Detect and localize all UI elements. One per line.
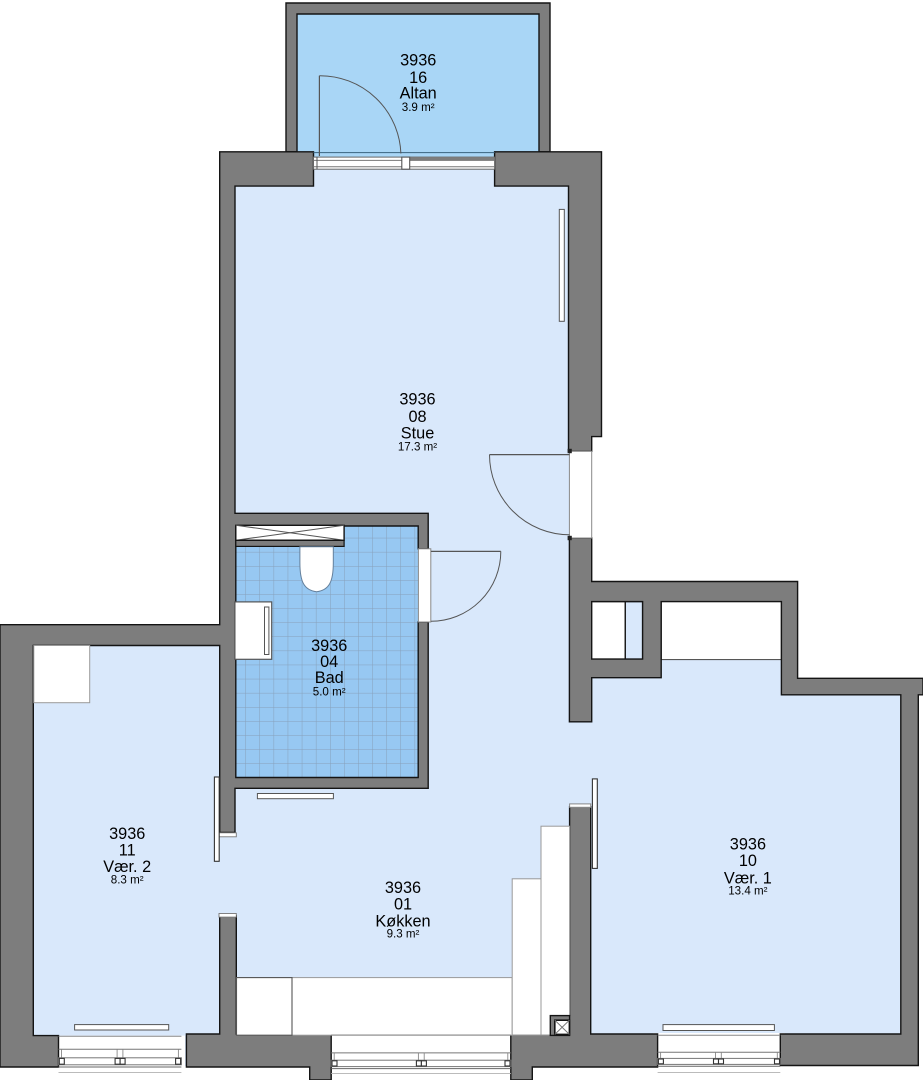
svg-text:17.3 m²: 17.3 m²	[398, 441, 437, 454]
svg-text:13.4 m²: 13.4 m²	[728, 884, 767, 897]
svg-text:3936: 3936	[109, 825, 145, 843]
svg-text:10: 10	[739, 852, 757, 870]
svg-text:3936: 3936	[400, 51, 436, 69]
svg-text:3936: 3936	[399, 391, 435, 409]
svg-text:9.3 m²: 9.3 m²	[387, 928, 420, 941]
svg-text:08: 08	[408, 408, 426, 426]
svg-text:Bad: Bad	[315, 669, 344, 687]
svg-text:01: 01	[394, 896, 412, 914]
svg-text:3.9 m²: 3.9 m²	[402, 101, 435, 114]
svg-text:8.3 m²: 8.3 m²	[111, 873, 144, 886]
svg-text:Altan: Altan	[400, 85, 437, 103]
svg-text:11: 11	[119, 841, 136, 859]
svg-text:5.0 m²: 5.0 m²	[313, 686, 346, 699]
svg-text:3936: 3936	[730, 836, 766, 854]
svg-text:3936: 3936	[385, 879, 421, 897]
